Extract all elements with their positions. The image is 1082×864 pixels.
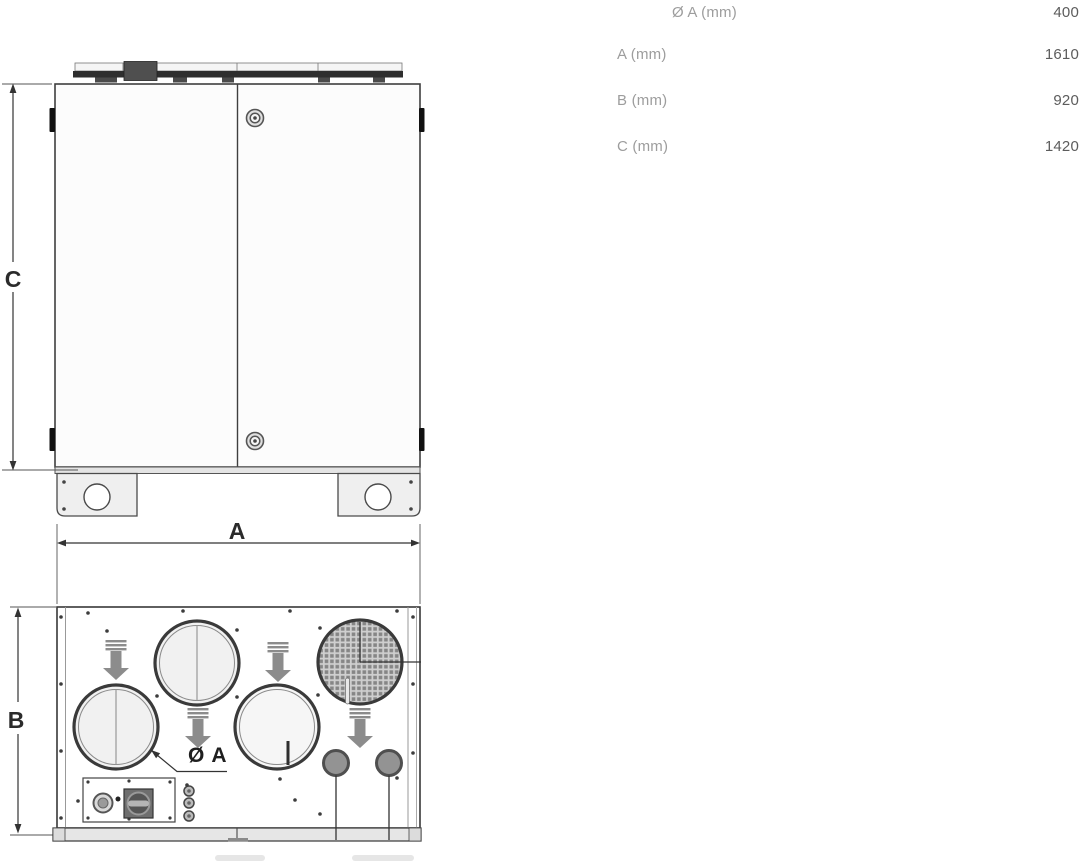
spec-label: Ø A (mm)	[672, 4, 737, 21]
spec-row: B (mm) 920	[617, 91, 1079, 110]
cabinet-base-strip	[55, 467, 420, 474]
spec-label: A (mm)	[617, 46, 667, 63]
dimension-b: B	[3, 607, 56, 835]
technical-drawings: C A B	[0, 0, 460, 864]
spec-row: Ø A (mm) 400	[672, 3, 1079, 22]
duct-port	[74, 685, 158, 769]
top-view-drawing: A B	[3, 518, 421, 861]
dimension-label-b: B	[8, 707, 25, 733]
dimension-label-c: C	[5, 266, 22, 292]
spec-row: A (mm) 1610	[617, 45, 1079, 64]
door-lock-screw-icon	[247, 110, 264, 127]
diameter-label: Ø A	[188, 744, 228, 767]
duct-port	[235, 685, 319, 769]
spec-label: B (mm)	[617, 92, 667, 109]
door-lock-screw-icon	[247, 433, 264, 450]
spec-value: 400	[1053, 4, 1079, 21]
spec-value: 1610	[1045, 46, 1079, 63]
spec-value: 920	[1053, 92, 1079, 109]
control-box	[83, 778, 175, 822]
rotary-switch-icon	[124, 789, 153, 818]
duct-port	[155, 621, 239, 705]
product-dimensions-page: C A B	[0, 0, 1082, 864]
front-view-drawing: C	[2, 62, 425, 517]
spec-value: 1420	[1045, 138, 1079, 155]
side-knobs	[184, 786, 194, 821]
dimension-label-a: A	[229, 518, 246, 544]
spec-row: C (mm) 1420	[617, 137, 1079, 156]
cable-gland-icon	[94, 794, 113, 813]
base-plate	[53, 828, 421, 842]
spec-label: C (mm)	[617, 138, 668, 155]
foot-bracket-left	[57, 474, 137, 517]
dimension-a: A	[57, 518, 420, 604]
foot-bracket-right	[338, 474, 420, 517]
cropped-bottom-marks	[215, 855, 414, 861]
top-junction-block	[124, 62, 157, 81]
top-rail	[73, 62, 403, 83]
